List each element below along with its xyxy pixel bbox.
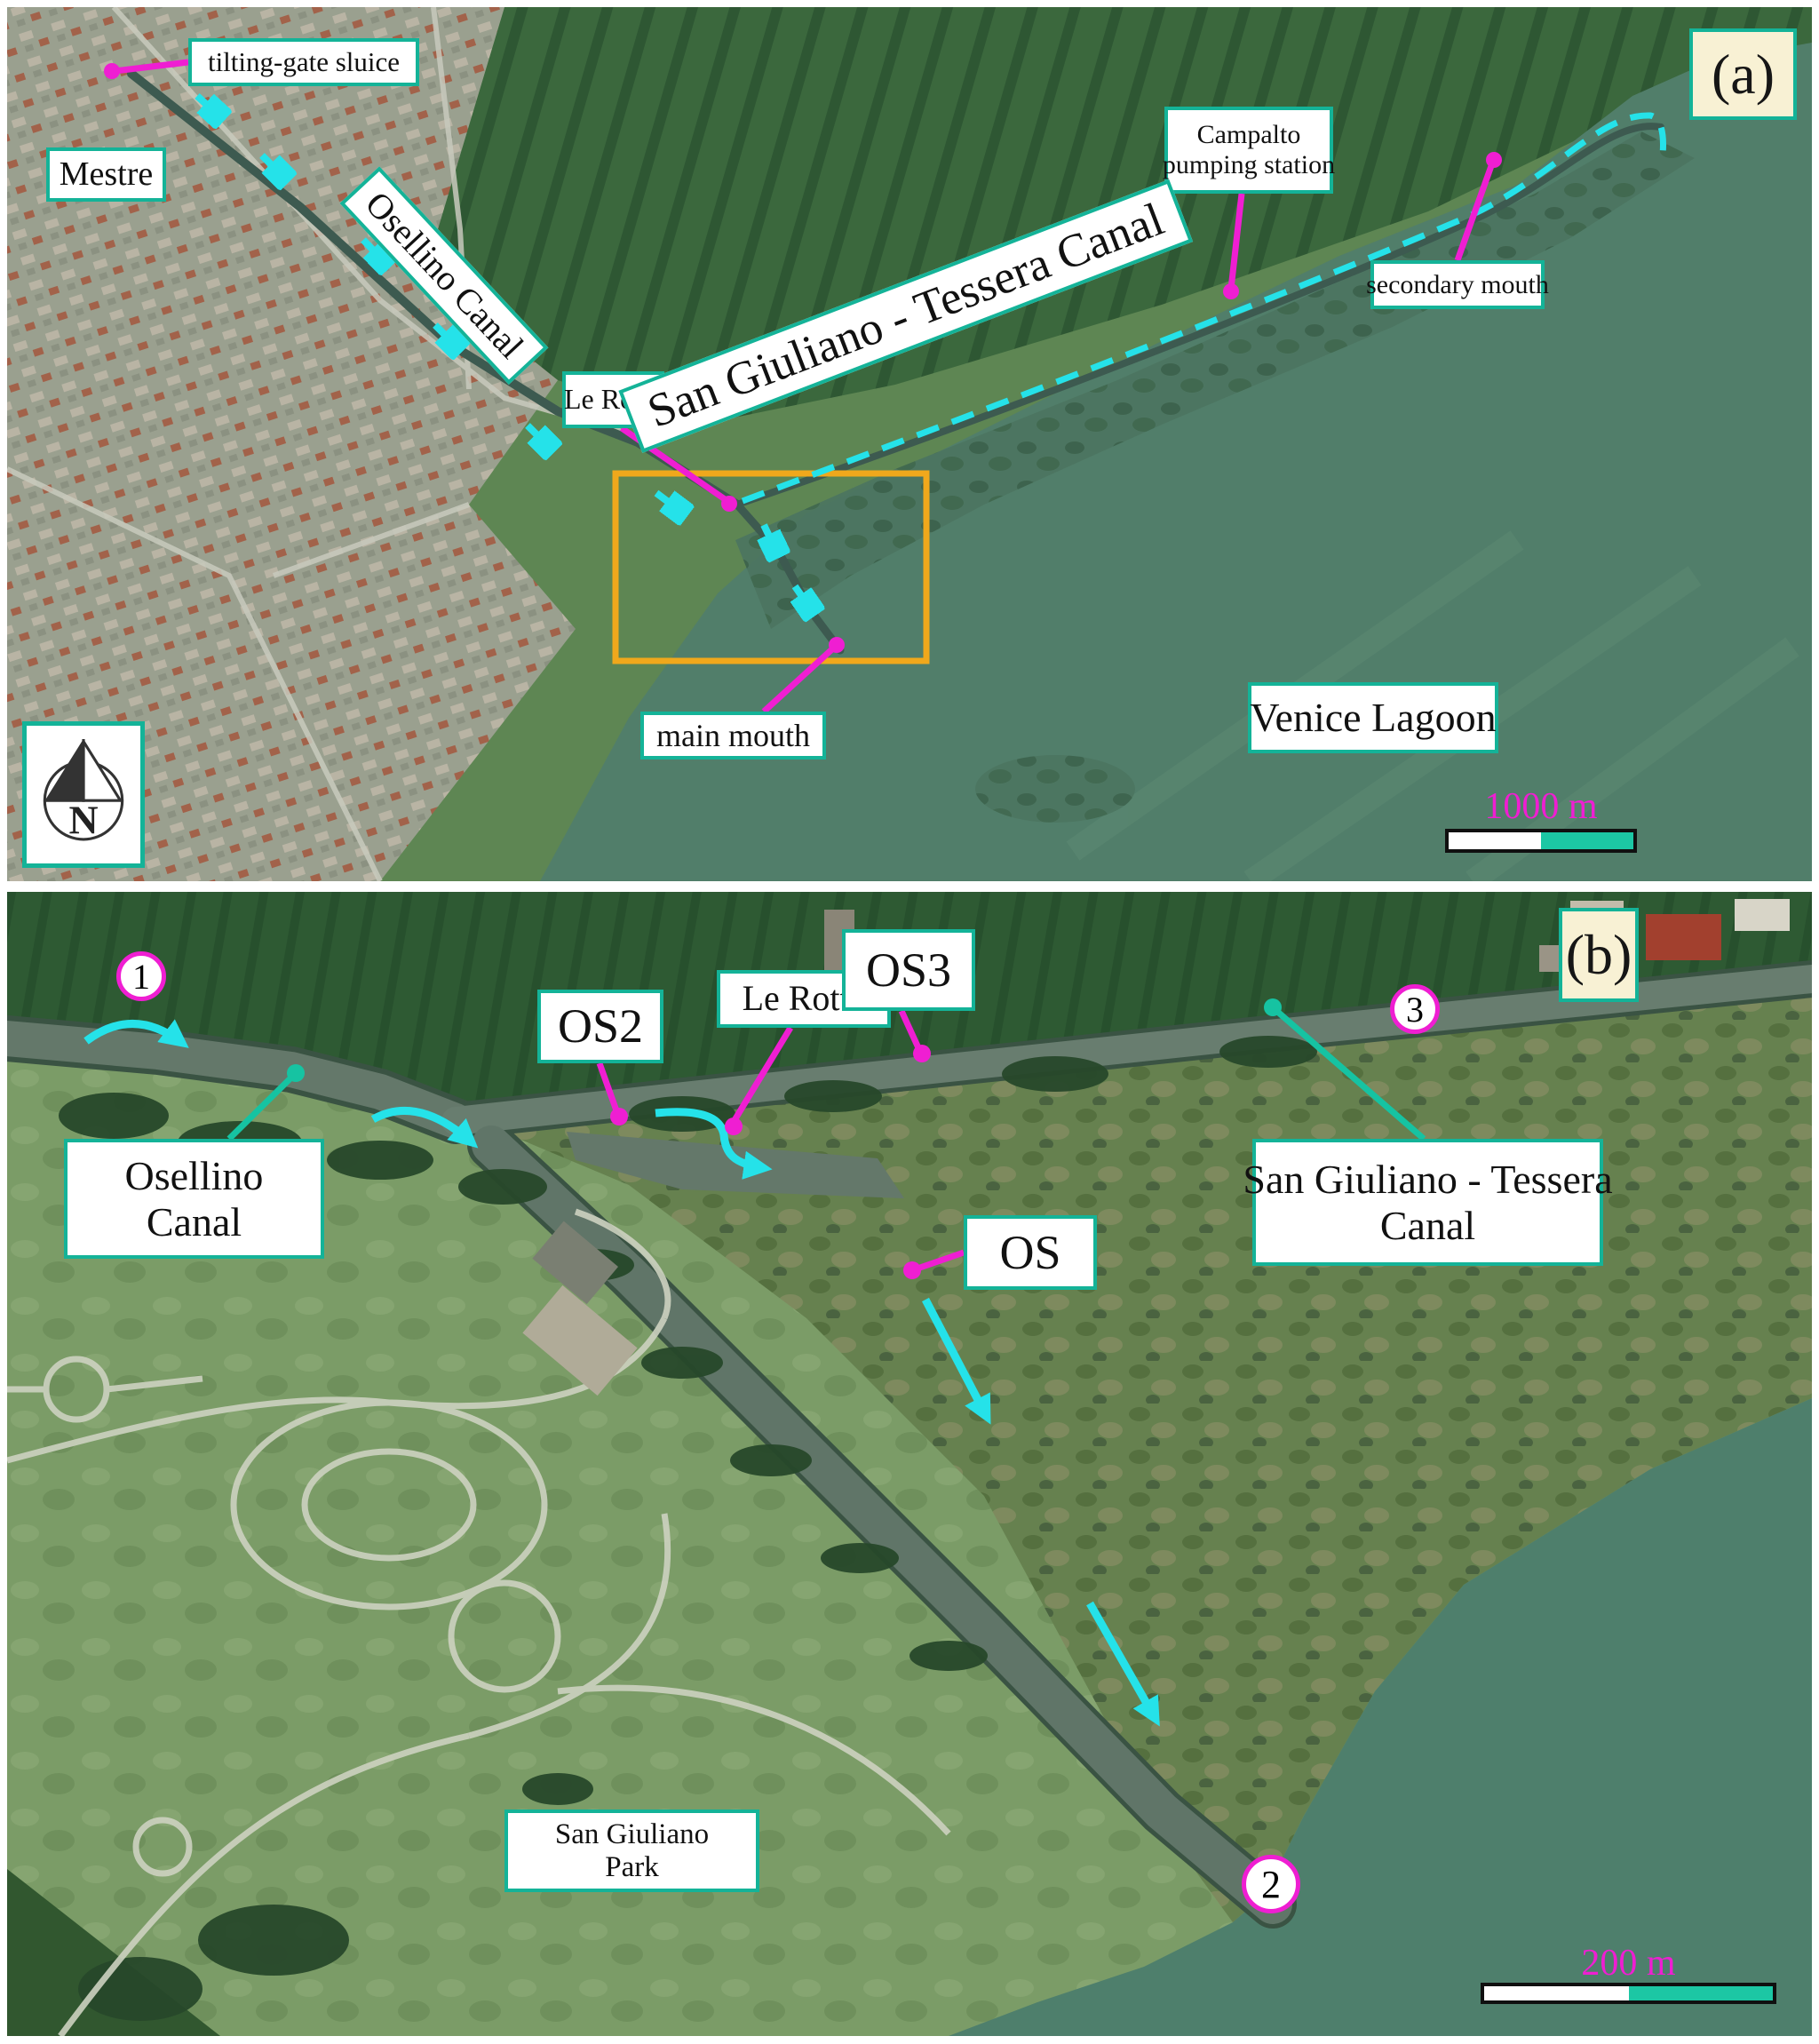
label-campalto-pumping-station: Campalto pumping station — [1164, 107, 1333, 194]
label-os: OS — [964, 1215, 1097, 1290]
label-mestre: Mestre — [46, 147, 166, 202]
flow-arrow-icon — [655, 1112, 764, 1168]
scale-bar-b — [1481, 1983, 1776, 2004]
label-os2: OS2 — [537, 990, 663, 1063]
scale-bar-teal-half — [1629, 1986, 1774, 2000]
panel-a-satellite-map: tilting-gate sluice Mestre Osellino Cana… — [7, 7, 1812, 881]
label-text: Mestre — [60, 155, 154, 194]
panel-a-marker: (a) — [1689, 28, 1797, 120]
point-marker-1: 1 — [116, 951, 166, 1001]
label-text-line1: Osellino — [125, 1153, 264, 1199]
panel-b-annotations — [7, 892, 1812, 2036]
label-text: Venice Lagoon — [1250, 695, 1496, 741]
marker-text: (b) — [1566, 922, 1632, 988]
label-text-line1: Campalto — [1197, 120, 1301, 150]
scale-bar-white-half — [1484, 1986, 1629, 2000]
label-text-line2: pumping station — [1163, 150, 1335, 180]
label-san-giuliano-park: San Giuliano Park — [504, 1809, 759, 1892]
two-panel-satellite-figure: tilting-gate sluice Mestre Osellino Cana… — [0, 0, 1819, 2044]
label-text-line1: San Giuliano - Tessera — [1243, 1157, 1612, 1203]
label-text-line2: Canal — [1380, 1203, 1475, 1249]
north-letter: N — [68, 797, 98, 842]
panel-b-satellite-map: 1 3 2 OS2 Le Rotte OS3 Osellino Canal Sa… — [7, 892, 1812, 2036]
label-text: main mouth — [656, 718, 810, 753]
flow-arrow-icon — [656, 493, 681, 512]
marker-text: (a) — [1712, 42, 1775, 107]
label-text: OS3 — [866, 943, 951, 997]
flow-arrows-b — [86, 1023, 1156, 1719]
north-compass-icon: N — [37, 739, 130, 851]
point-number: 1 — [132, 956, 150, 998]
label-main-mouth: main mouth — [640, 712, 826, 760]
label-text-line2: Park — [605, 1851, 659, 1884]
scale-label-b: 200 m — [1481, 1942, 1776, 1984]
flow-arrow-icon — [262, 155, 283, 177]
label-venice-lagoon: Venice Lagoon — [1248, 682, 1498, 753]
magenta-leader-dots-b — [610, 1045, 931, 1279]
label-tilting-gate-sluice: tilting-gate sluice — [188, 38, 419, 86]
label-text: OS2 — [558, 999, 643, 1053]
scale-label-a: 1000 m — [1445, 785, 1637, 828]
flow-arrow-icon — [795, 586, 811, 609]
label-text-line2: Canal — [147, 1199, 242, 1245]
flow-arrow-icon — [1090, 1603, 1156, 1719]
label-os3: OS3 — [842, 929, 975, 1011]
label-san-giuliano-tessera-canal-b: San Giuliano - Tessera Canal — [1252, 1139, 1603, 1266]
scale-text: 200 m — [1581, 1943, 1675, 1984]
label-osellino-canal-b: Osellino Canal — [64, 1139, 324, 1259]
scale-text: 1000 m — [1484, 786, 1597, 827]
flow-arrow-icon — [925, 1300, 987, 1417]
scale-bar-a — [1445, 829, 1637, 853]
flow-arrow-icon — [764, 525, 776, 551]
flow-arrow-icon — [86, 1023, 182, 1043]
north-arrow-box: N — [22, 721, 145, 868]
scale-bar-white-half — [1449, 832, 1541, 849]
flow-arrow-icon — [528, 426, 549, 447]
point-number: 3 — [1406, 989, 1424, 1030]
flow-arrow-icon — [373, 1110, 472, 1142]
label-text: secondary mouth — [1366, 270, 1549, 300]
teal-leader-lines — [229, 1009, 1424, 1139]
flow-arrow-icon — [435, 325, 457, 346]
point-number: 2 — [1261, 1862, 1281, 1907]
label-text: tilting-gate sluice — [208, 47, 400, 78]
label-text-line1: San Giuliano — [555, 1818, 709, 1851]
label-text: OS — [999, 1226, 1060, 1279]
point-marker-2: 2 — [1242, 1855, 1300, 1913]
scale-bar-teal-half — [1541, 832, 1633, 849]
panel-b-marker: (b) — [1559, 908, 1639, 1002]
panel-a-annotations — [7, 7, 1812, 881]
flow-arrow-icon — [197, 96, 218, 115]
label-secondary-mouth: secondary mouth — [1370, 260, 1545, 309]
point-marker-3: 3 — [1390, 984, 1440, 1034]
